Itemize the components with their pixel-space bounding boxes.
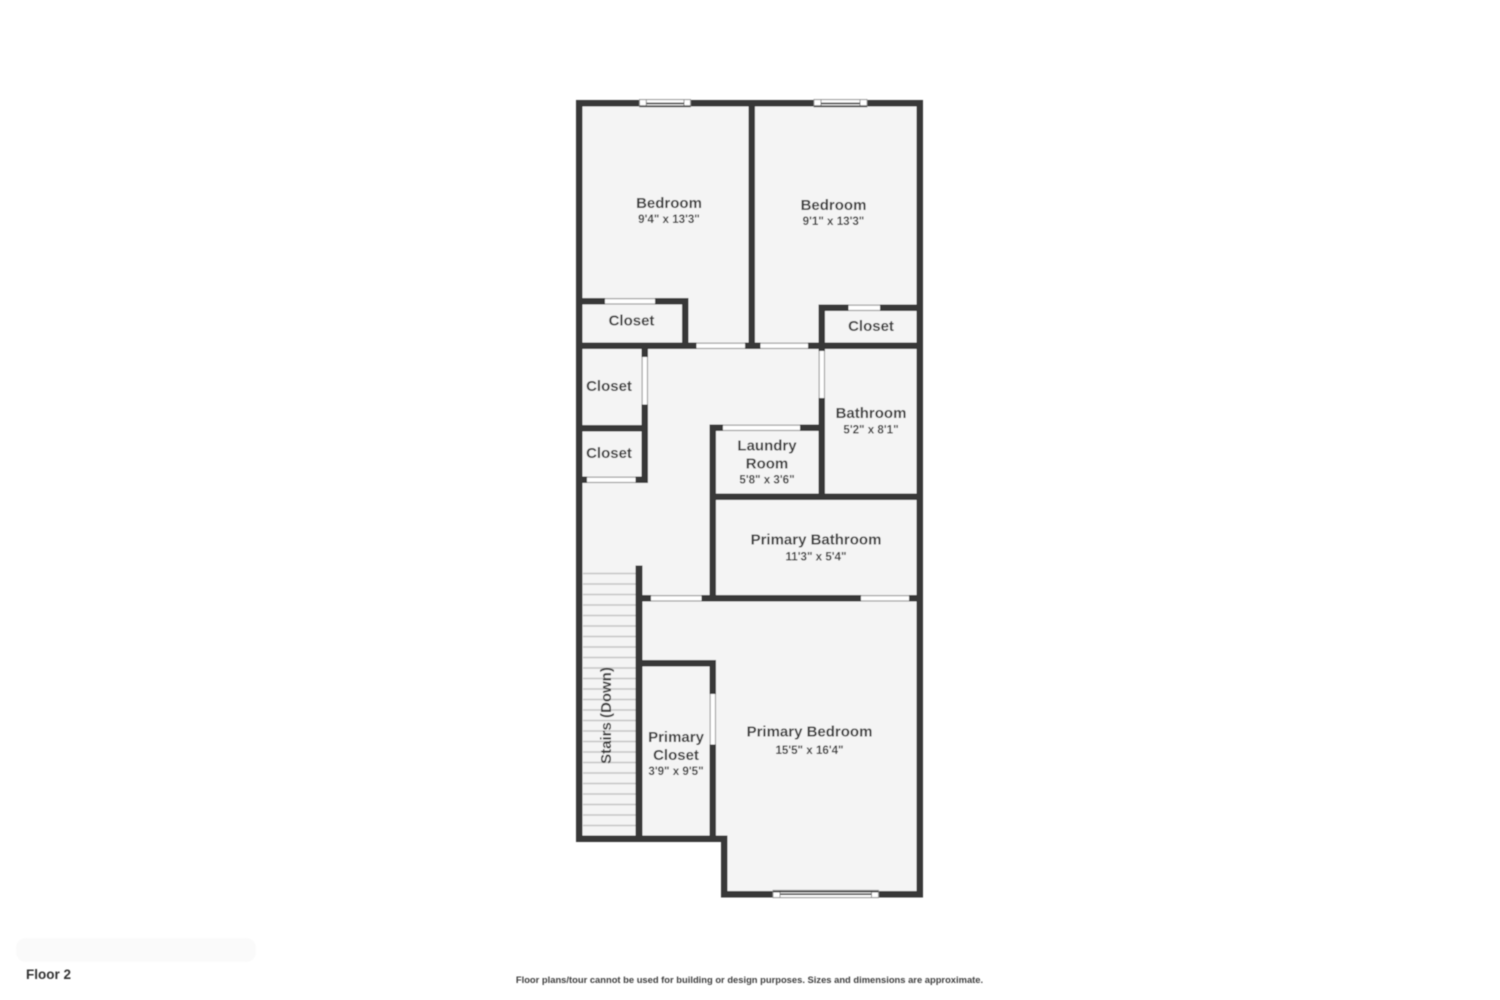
svg-text:9'4" x 13'3": 9'4" x 13'3" [638,213,700,226]
svg-text:Closet: Closet [609,313,655,330]
svg-text:Floor 2: Floor 2 [26,967,71,982]
svg-text:Primary: Primary [648,729,705,746]
svg-text:Bedroom: Bedroom [636,195,702,212]
svg-text:Closet: Closet [586,378,632,395]
svg-text:Stairs (Down): Stairs (Down) [598,667,615,764]
svg-text:Bedroom: Bedroom [801,197,867,214]
svg-text:Laundry: Laundry [737,438,797,455]
svg-text:11'3" x 5'4": 11'3" x 5'4" [786,551,847,564]
svg-text:Room: Room [746,456,789,473]
svg-text:Primary Bathroom: Primary Bathroom [751,532,882,549]
svg-text:5'8" x 3'6": 5'8" x 3'6" [739,474,794,487]
svg-text:15'5" x 16'4": 15'5" x 16'4" [775,744,843,757]
svg-text:Closet: Closet [653,747,699,764]
svg-text:Closet: Closet [848,318,894,335]
svg-text:Bathroom: Bathroom [836,405,907,422]
svg-text:Floor plans/tour cannot be use: Floor plans/tour cannot be used for buil… [516,974,983,985]
svg-text:9'1" x 13'3": 9'1" x 13'3" [803,215,865,228]
svg-text:Closet: Closet [586,445,632,462]
svg-text:5'2" x 8'1": 5'2" x 8'1" [843,424,898,437]
svg-text:Primary Bedroom: Primary Bedroom [747,724,873,741]
svg-text:3'9" x 9'5": 3'9" x 9'5" [648,765,703,778]
